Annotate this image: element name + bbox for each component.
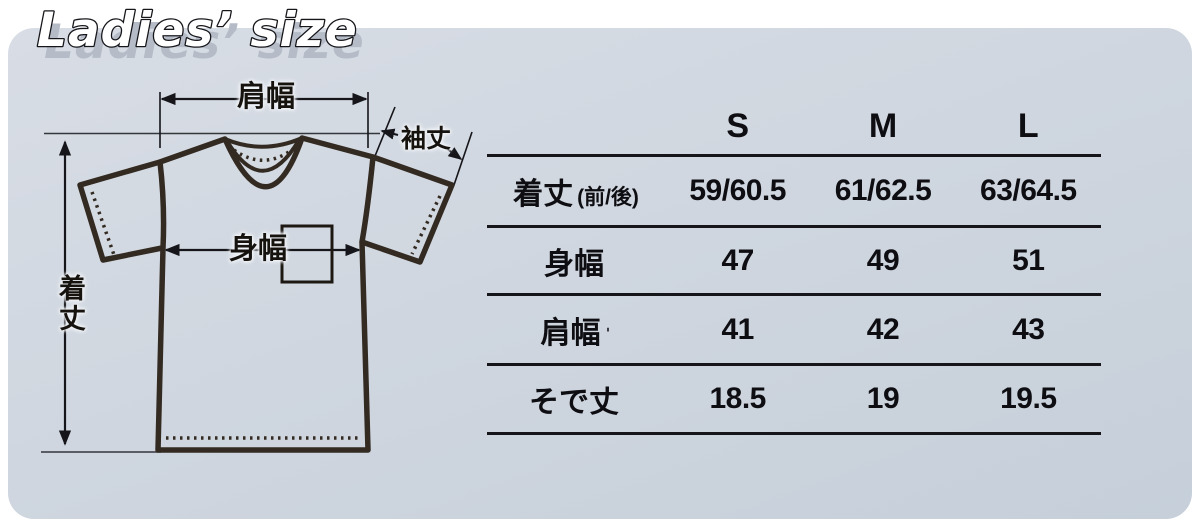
size-value: 49 [810,244,955,278]
row-label-text: そで丈 [529,386,619,419]
table-header-row: S M L [487,98,1101,154]
col-header-m: M [810,107,955,146]
size-value: 47 [665,244,810,278]
size-value: 61/62.5 [810,174,955,208]
size-value: 51 [956,244,1101,278]
body-length-label: 着丈 [50,274,84,334]
shoulder-width-label: 肩幅 [226,82,306,112]
sleeve-length-label: 袖丈 [396,126,456,152]
body-width-label: 身幅 [222,234,294,264]
size-value: 63/64.5 [956,174,1101,208]
row-label: そで丈 [487,377,665,421]
tshirt-right-sleeve [362,157,452,262]
tshirt-drawing [30,55,510,475]
row-label-text: 身幅 [544,248,604,281]
row-label-note: ˈ [605,325,612,348]
row-label-text: 着丈 [513,178,573,211]
size-value: 19 [810,382,955,416]
tshirt-diagram: 肩幅 袖丈 身幅 着丈 [30,55,510,475]
page: Ladies’ size Ladies’ size [0,0,1200,522]
table-row: 身幅 47 49 51 [487,225,1101,293]
row-label-note: (前/後) [577,186,639,209]
collar-back-line [225,138,302,147]
size-value: 42 [810,313,955,347]
page-title-group: Ladies’ size Ladies’ size [24,0,504,76]
table-row: 着丈(前/後) 59/60.5 61/62.5 63/64.5 [487,154,1101,225]
table-row: 肩幅ˈ 41 42 43 [487,293,1101,363]
row-label: 着丈(前/後) [487,169,665,213]
tshirt-body-outline [158,138,373,450]
size-value: 41 [665,313,810,347]
size-table: S M L 着丈(前/後) 59/60.5 61/62.5 63/64.5 身幅… [487,98,1101,435]
col-header-l: L [956,107,1101,146]
row-label: 身幅 [487,239,665,283]
size-value: 43 [956,313,1101,347]
size-value: 18.5 [665,382,810,416]
left-cuff-stitch-dots [92,192,114,255]
size-value: 59/60.5 [665,174,810,208]
row-label-text: 肩幅 [541,317,601,350]
page-title: Ladies’ size [37,3,358,58]
size-value: 19.5 [956,382,1101,416]
row-label: 肩幅ˈ [487,308,665,352]
sleeve-length-tick-bottom [454,132,472,185]
tshirt-left-sleeve [80,162,162,260]
col-header-s: S [665,107,810,146]
table-row: そで丈 18.5 19 19.5 [487,363,1101,435]
